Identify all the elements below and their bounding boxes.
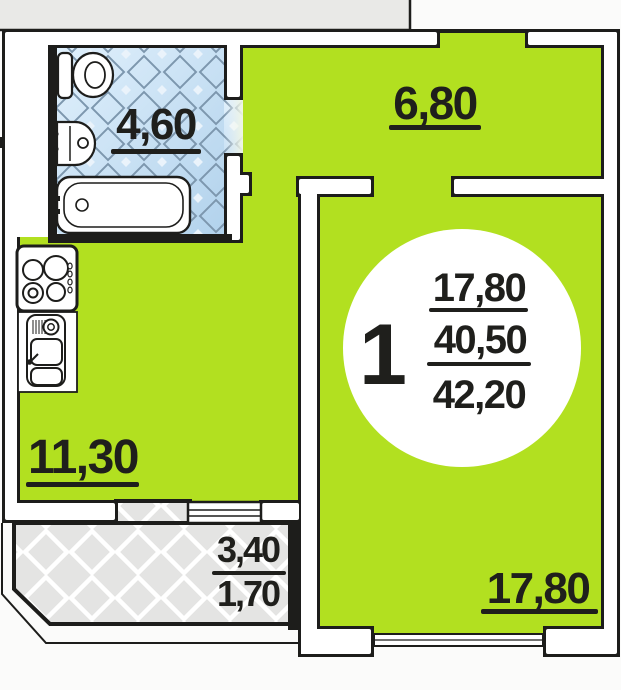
stairwell-area [0,0,410,30]
kitchen-sink-icon [18,312,77,392]
bathroom-door-opening [224,100,243,153]
unit-living-area: 17,80 [424,261,534,315]
living-room-area-underline [481,609,598,614]
unit-number: 1 [348,297,418,413]
unit-fraction-line-2 [427,362,531,366]
unit-fraction-line-1 [429,308,528,312]
bathtub-icon [51,177,190,233]
bathroom-area-label: 4,60 [111,95,201,154]
duct-shaft [15,45,52,237]
balcony-door-threshold [114,499,192,503]
stove-icon [17,246,77,311]
floor-plan: 4,60 6,80 11,30 3,40 1,70 17,80 1 17,80 … [0,0,621,690]
kitchen-window [188,502,261,523]
unit-area-no-balcony: 40,50 [424,313,536,367]
living-room-window [374,634,543,657]
balcony-area-reduced-label: 1,70 [205,570,291,619]
entrance-threshold [437,29,528,33]
bathroom-area-underline [111,149,201,154]
kitchen-area-underline [26,482,139,487]
washbasin-icon [53,122,95,165]
hallway-area-underline [389,125,481,130]
unit-total-area: 42,20 [423,368,535,422]
toilet-icon [58,53,113,98]
balcony-area-label: 3,40 [205,526,291,575]
